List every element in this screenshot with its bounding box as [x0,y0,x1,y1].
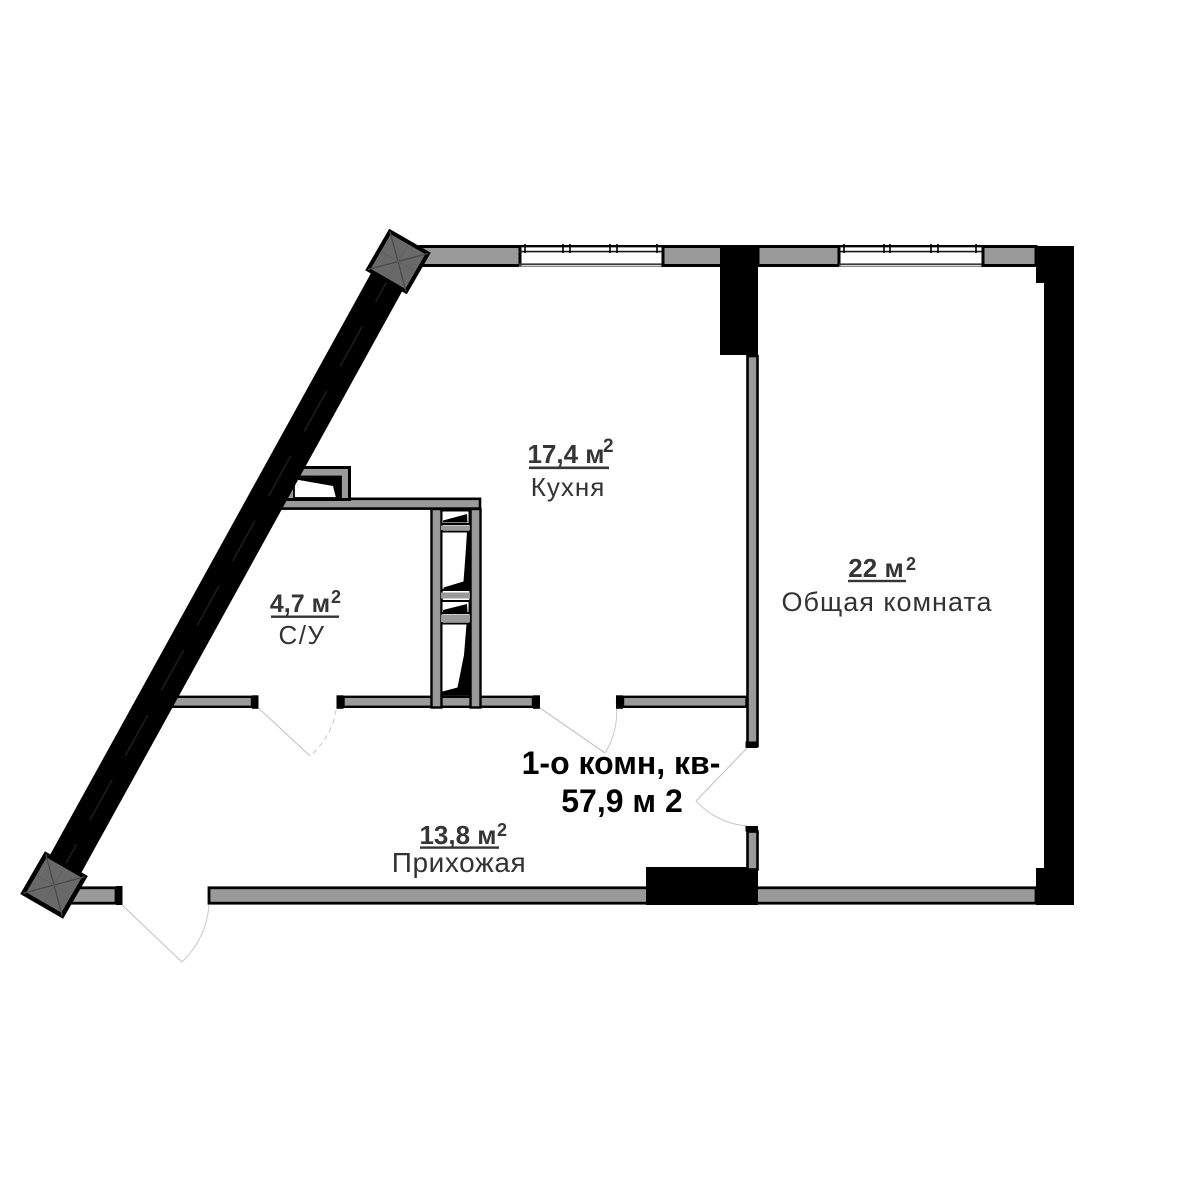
svg-text:2: 2 [603,436,614,457]
svg-text:Прихожая: Прихожая [392,847,527,878]
svg-text:2: 2 [331,587,341,607]
svg-text:22 м: 22 м [848,553,903,583]
svg-text:13,8 м: 13,8 м [419,820,496,850]
svg-text:Кухня: Кухня [531,472,606,502]
svg-text:2: 2 [497,820,507,840]
svg-text:Общая комната: Общая комната [782,587,993,617]
svg-text:С/У: С/У [278,620,325,650]
svg-text:1-о комн, кв-: 1-о комн, кв- [522,745,721,781]
svg-text:57,9 м 2: 57,9 м 2 [561,783,683,819]
svg-text:17,4 м: 17,4 м [527,439,604,469]
svg-text:2: 2 [906,554,916,574]
svg-text:4,7 м: 4,7 м [270,590,330,618]
